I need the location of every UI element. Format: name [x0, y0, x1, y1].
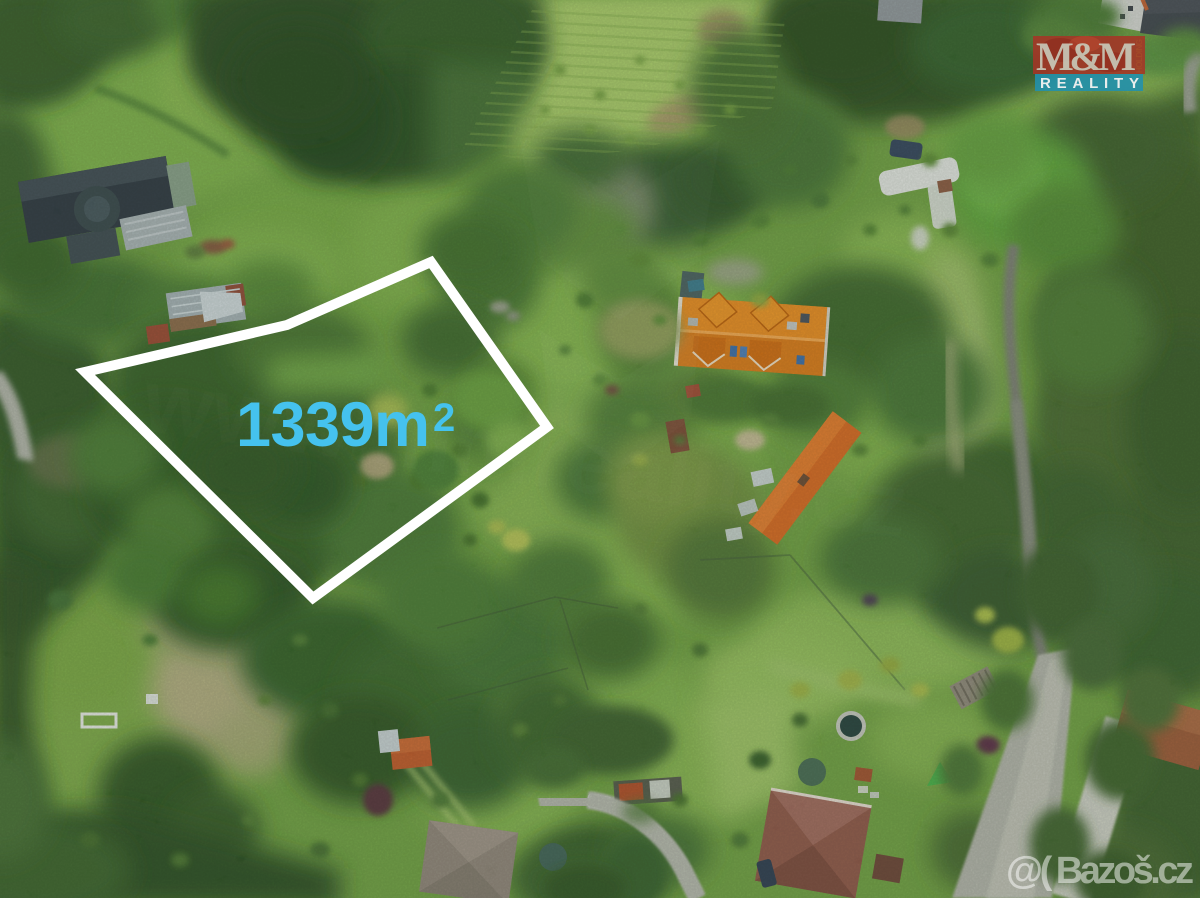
- svg-text:@( Bazoš.cz: @( Bazoš.cz: [1006, 850, 1194, 892]
- svg-text:2: 2: [433, 396, 455, 440]
- svg-text:M&M: M&M: [1036, 34, 1136, 79]
- svg-text:HOLDING: HOLDING: [1135, 39, 1144, 73]
- svg-text:1339m: 1339m: [236, 390, 430, 460]
